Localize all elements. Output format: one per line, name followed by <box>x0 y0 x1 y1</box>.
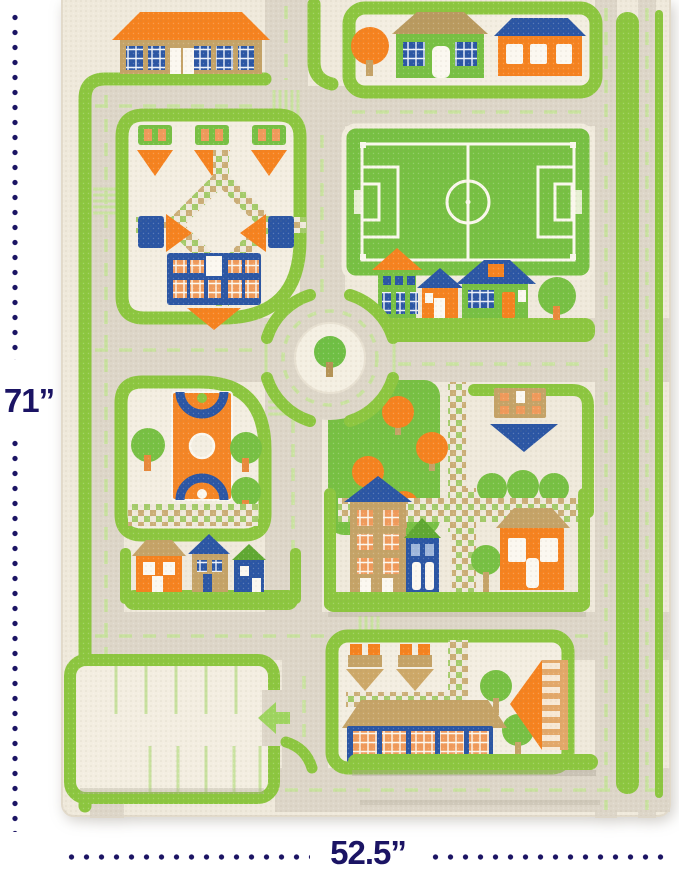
fabric-texture <box>62 0 670 816</box>
product-photo: 71” 52.5” <box>0 0 679 873</box>
play-rug-image <box>60 0 673 818</box>
height-dotted-line-bottom <box>12 436 18 832</box>
height-dotted-line-top <box>12 10 18 360</box>
width-dotted-line-left <box>64 854 310 860</box>
height-dimension-label: 71” <box>0 384 58 417</box>
width-dimension-label: 52.5” <box>306 836 430 869</box>
width-dotted-line-right <box>428 854 670 860</box>
